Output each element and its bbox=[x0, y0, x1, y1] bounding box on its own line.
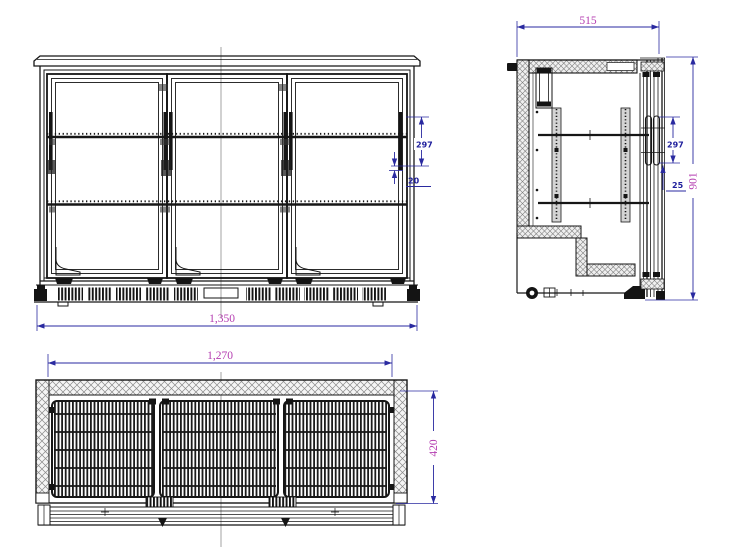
door-1 bbox=[47, 74, 167, 278]
dim-side-depth: 515 bbox=[517, 15, 659, 57]
vent-grille bbox=[58, 288, 386, 307]
front-shelf-spacing-label: 297 bbox=[416, 141, 433, 150]
side-shelf-offset-label: 25 bbox=[672, 181, 684, 190]
plan-width-label: 1,270 bbox=[207, 350, 233, 362]
dim-plan-width: 1,270 bbox=[48, 350, 392, 377]
front-view: 1,350 297 20 bbox=[34, 47, 438, 331]
side-depth-label: 515 bbox=[579, 15, 597, 27]
cable-gland bbox=[507, 63, 517, 71]
dim-side-shelf-spacing: 297 bbox=[659, 117, 689, 163]
dim-side-height: 901 bbox=[645, 57, 700, 300]
front-shelves bbox=[47, 134, 407, 213]
plan-view: 1,270 bbox=[36, 350, 440, 547]
side-shelf-spacing-label: 297 bbox=[667, 141, 684, 150]
side-height-label: 901 bbox=[688, 172, 700, 190]
dim-front-width: 1,350 bbox=[37, 305, 417, 331]
door-handle-profile bbox=[654, 116, 660, 165]
stepped-floor bbox=[517, 226, 635, 276]
front-shelf-offset-label: 20 bbox=[408, 177, 420, 186]
wire-shelf-2 bbox=[160, 401, 278, 497]
handle-grip bbox=[161, 160, 171, 176]
side-door-section bbox=[640, 58, 665, 300]
shelf-support-posts bbox=[552, 108, 630, 222]
door-2 bbox=[167, 74, 287, 278]
cabinet-body-frame bbox=[34, 66, 418, 302]
wire-shelf-3 bbox=[284, 401, 389, 497]
rear-foot bbox=[624, 286, 633, 299]
handle-grip bbox=[281, 160, 291, 176]
side-view: 515 bbox=[507, 15, 700, 300]
plan-door-track bbox=[38, 497, 405, 527]
plan-depth-label: 420 bbox=[428, 439, 440, 457]
front-width-label: 1,350 bbox=[209, 313, 235, 325]
evaporator-unit bbox=[536, 68, 552, 108]
front-doors bbox=[46, 74, 407, 278]
door-handle-bars bbox=[46, 84, 402, 176]
door-slider bbox=[269, 497, 296, 507]
handle-grip bbox=[46, 160, 55, 174]
plan-wire-shelves bbox=[49, 399, 394, 498]
wire-shelf-1 bbox=[52, 401, 154, 497]
drawing-svg: 1,350 297 20 515 bbox=[0, 0, 738, 556]
door-3 bbox=[287, 74, 407, 278]
door-slider bbox=[146, 497, 173, 507]
technical-drawing-page: 1,350 297 20 515 bbox=[0, 0, 738, 556]
cabinet-top-lid bbox=[34, 56, 420, 66]
